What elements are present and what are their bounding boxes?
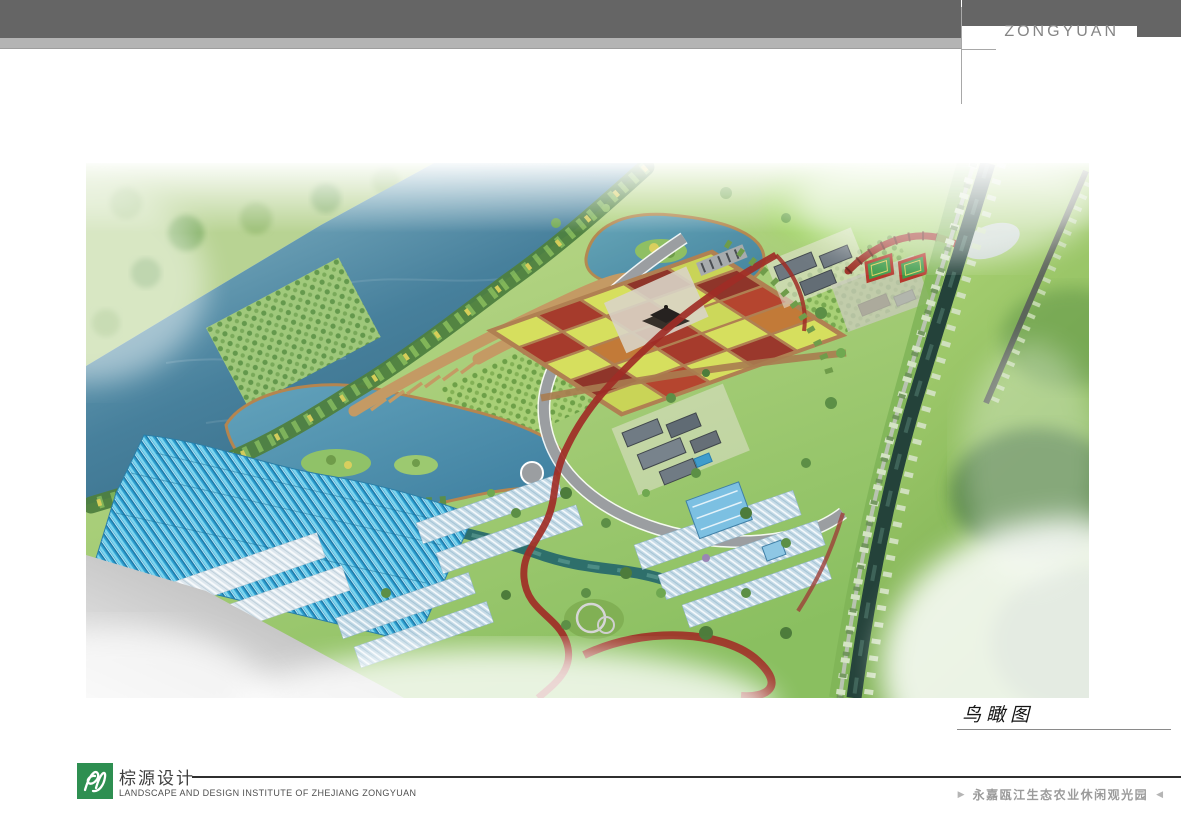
zongyuan-logo-icon <box>77 763 113 799</box>
figure-caption-rule <box>957 729 1171 730</box>
figure-caption: 鸟瞰图 <box>962 700 1034 727</box>
header-horizontal-line <box>961 49 996 50</box>
header-bar-dark-left <box>0 0 961 38</box>
project-title: ▶ 永嘉瓯江生态农业休闲观光园 ◀ <box>958 786 1163 803</box>
triangle-left-icon: ◀ <box>1156 790 1163 799</box>
presentation-page: ZONGYUAN <box>0 0 1181 835</box>
aerial-rendering-svg <box>86 163 1089 698</box>
company-name: 棕源设计 <box>119 764 195 789</box>
company-subtitle: LANDSCAPE AND DESIGN INSTITUTE OF ZHEJIA… <box>119 788 416 798</box>
header-bar-dark-right-block <box>1137 0 1181 37</box>
footer-rule <box>192 776 1181 778</box>
header-vertical-line <box>961 7 962 104</box>
winding-garden <box>564 599 624 639</box>
triangle-right-icon: ▶ <box>958 790 965 799</box>
project-title-text: 永嘉瓯江生态农业休闲观光园 <box>973 786 1149 803</box>
brand-text: ZONGYUAN <box>1004 23 1119 41</box>
header-bar-light-left <box>0 38 961 49</box>
aerial-rendering-image <box>86 163 1089 698</box>
